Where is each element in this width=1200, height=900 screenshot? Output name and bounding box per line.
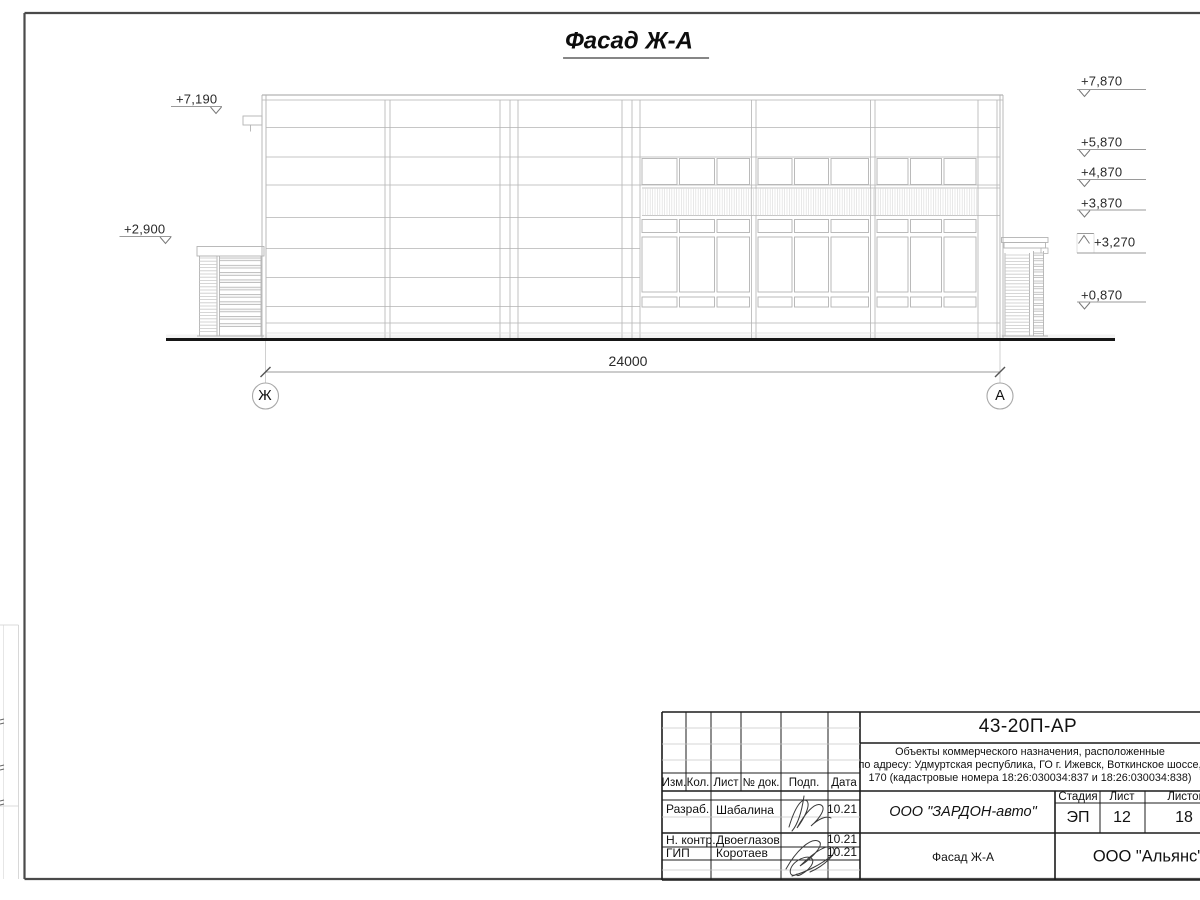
elevation-label: +4,870 [1081, 165, 1122, 180]
elevation-label: +3,270 [1094, 235, 1135, 250]
project-line: по адресу: Удмуртская республика, ГО г. … [858, 759, 1200, 771]
sheets-value: 18 [1175, 809, 1193, 827]
row-name: Двоеглазов [716, 833, 780, 847]
stage-label: Стадия [1058, 791, 1097, 803]
elevation-label: +3,870 [1081, 196, 1122, 211]
elevation-label: +0,870 [1081, 288, 1122, 303]
axis-bubble-label: Ж [258, 388, 271, 404]
elevation-label: +7,190 [176, 92, 217, 107]
col-header-doc: № док. [743, 777, 780, 789]
col-header-data: Дата [831, 777, 856, 789]
project-line: Объекты коммерческого назначения, распол… [895, 746, 1165, 758]
customer-name: ООО "ЗАРДОН-авто" [889, 804, 1037, 820]
col-header-izm: Изм. [662, 777, 687, 789]
stage-value: ЭП [1067, 809, 1090, 827]
project-line: 170 (кадастровые номера 18:26:030034:837… [869, 772, 1192, 784]
drawing-sheet: Фасад Ж-А +7,870 +5,870 +4,870 +3,870 +3… [0, 0, 1200, 900]
page-title: Фасад Ж-А [563, 28, 709, 59]
sheets-label: Листов [1167, 791, 1200, 803]
row-name: Шабалина [716, 803, 774, 817]
row-date: 10.21 [827, 802, 857, 816]
axis-bubble-label: А [995, 388, 1005, 404]
row-date: 10.21 [827, 832, 857, 846]
row-date: 10.21 [827, 845, 857, 859]
row-role: ГИП [666, 846, 690, 860]
doc-number: 43-20П-АР [979, 716, 1077, 738]
elevation-label: +7,870 [1081, 74, 1122, 89]
col-header-list: Лист [714, 777, 739, 789]
col-header-podp: Подп. [789, 777, 820, 789]
row-role: Н. контр. [666, 833, 716, 847]
row-role: Разраб. [666, 802, 709, 816]
row-name: Коротаев [716, 846, 768, 860]
elevation-label: +2,900 [124, 222, 165, 237]
elevation-label: +5,870 [1081, 135, 1122, 150]
sheet-title: Фасад Ж-А [932, 850, 994, 864]
col-header-kol: Кол. [687, 777, 710, 789]
sheet-value: 12 [1113, 809, 1131, 827]
sheet-label: Лист [1110, 791, 1135, 803]
org-name: ООО "Альянс" [1093, 848, 1200, 867]
dimension-label: 24000 [609, 353, 648, 369]
